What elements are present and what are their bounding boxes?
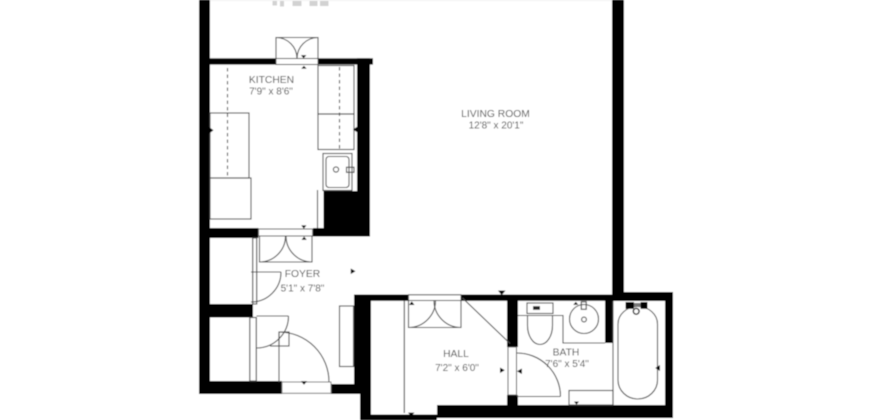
svg-text:7'2" x 6'0": 7'2" x 6'0" bbox=[435, 363, 479, 374]
svg-text:KITCHEN: KITCHEN bbox=[249, 75, 294, 86]
svg-text:7'9" x 8'6": 7'9" x 8'6" bbox=[249, 87, 293, 98]
svg-text:12'8" x 20'1": 12'8" x 20'1" bbox=[469, 121, 524, 132]
svg-text:LIVING ROOM: LIVING ROOM bbox=[461, 109, 530, 120]
svg-text:BATH: BATH bbox=[553, 348, 580, 359]
svg-text:7'6" x 5'4": 7'6" x 5'4" bbox=[545, 359, 589, 370]
svg-text:HALL: HALL bbox=[443, 349, 469, 360]
svg-text:FOYER: FOYER bbox=[285, 269, 320, 280]
svg-text:5'1" x 7'8": 5'1" x 7'8" bbox=[281, 284, 325, 295]
